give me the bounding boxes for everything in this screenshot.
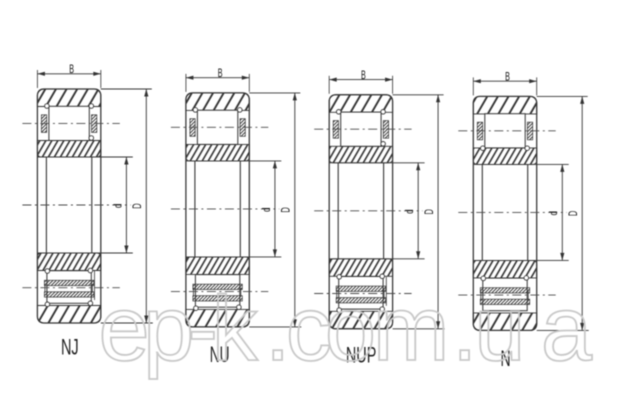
svg-text:d: d — [261, 207, 273, 212]
svg-text:d: d — [404, 209, 416, 214]
svg-text:d: d — [548, 211, 560, 216]
svg-text:D: D — [568, 211, 580, 216]
svg-text:D: D — [281, 207, 293, 212]
svg-text:ep-k.com.ua: ep-k.com.ua — [99, 278, 593, 380]
svg-text:d: d — [112, 204, 124, 209]
svg-text:B: B — [69, 64, 74, 76]
svg-text:D: D — [424, 209, 436, 214]
svg-text:NJ: NJ — [61, 334, 79, 359]
svg-text:B: B — [218, 68, 223, 80]
svg-text:B: B — [505, 71, 510, 83]
svg-text:B: B — [361, 70, 366, 82]
svg-text:D: D — [132, 203, 144, 208]
